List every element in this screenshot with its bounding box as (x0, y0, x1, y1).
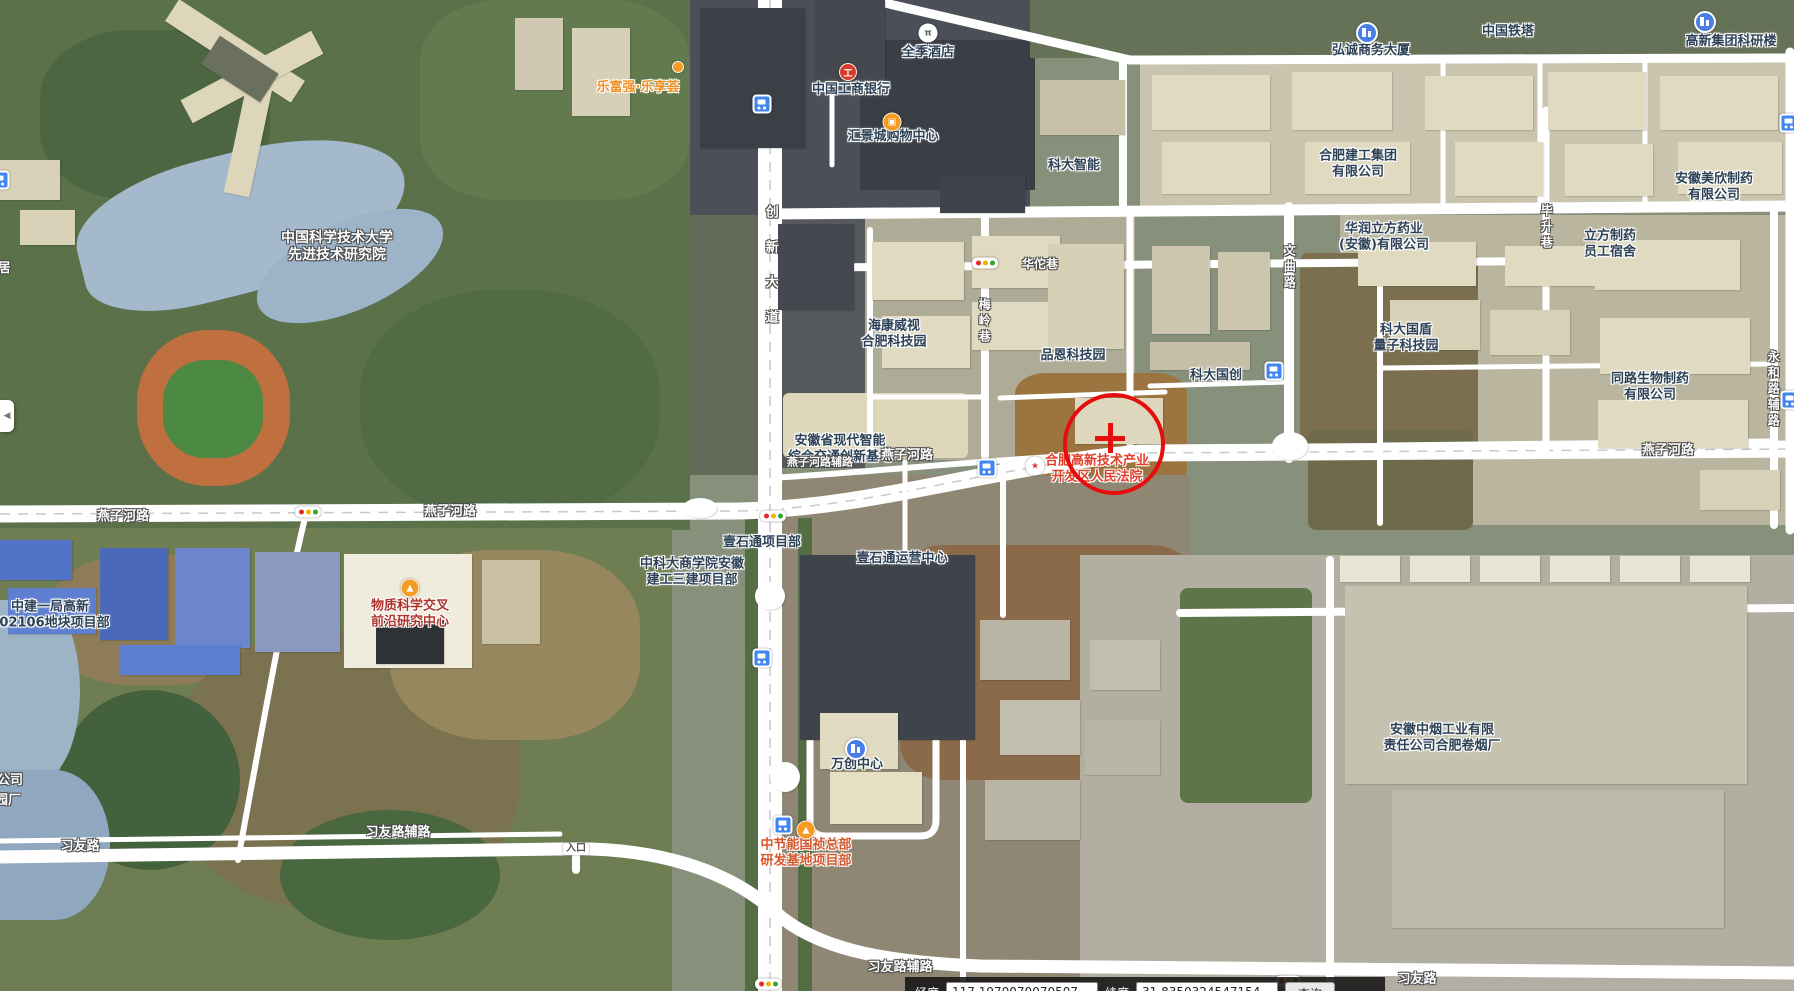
lab-flask-icon[interactable]: ▲ (401, 579, 420, 598)
map-label[interactable]: 品恩科技园 (1040, 348, 1105, 364)
marker-crosshair-v (1108, 423, 1113, 453)
map-label: 燕子河路 (881, 448, 933, 464)
map-label: 习友路 (60, 839, 99, 855)
map-label[interactable]: 华润立方药业(安徽)有限公司 (1339, 221, 1429, 252)
latitude-label: 纬度 (1105, 984, 1129, 991)
map-label: 园厂 (0, 793, 21, 809)
traffic-light-icon (760, 511, 786, 522)
traffic-light-icon (972, 258, 998, 269)
map-label: 燕子河路 (1642, 443, 1694, 459)
map-label: 居 (0, 261, 11, 277)
chevron-left-icon: ◀ (4, 411, 11, 421)
map-label: 燕子河路 (97, 509, 149, 525)
map-label: 华佗巷 (1022, 257, 1058, 271)
panel-collapse-button[interactable]: ◀ (0, 400, 14, 432)
map-label[interactable]: 中国工商银行 (812, 82, 890, 98)
poi-dot-icon[interactable] (672, 61, 684, 73)
bank-icon[interactable]: 工 (839, 63, 857, 81)
map-label: 毕升巷 (1539, 204, 1553, 252)
bus-stop-icon[interactable] (1780, 114, 1794, 133)
shopping-icon[interactable]: ▣ (883, 113, 902, 132)
map-label: 习友路辅路 (867, 960, 932, 976)
bus-stop-icon[interactable] (1781, 391, 1794, 410)
bus-stop-icon[interactable] (774, 816, 793, 835)
map-label[interactable]: 中科大商学院安徽建工三建项目部 (640, 556, 744, 587)
map-label: 文曲路 (1282, 244, 1296, 292)
map-label[interactable]: 海康威视合肥科技园 (861, 318, 926, 349)
map-label: 永和路辅路 (1766, 350, 1780, 430)
map-label: 燕子河路 (424, 504, 476, 520)
map-label[interactable]: 弘诚商务大厦 (1332, 43, 1410, 59)
court-star-icon[interactable]: ★ (1026, 457, 1045, 476)
map-label[interactable]: 安徽美欣制药有限公司 (1675, 171, 1753, 202)
building-poi-icon[interactable] (1356, 22, 1378, 44)
map-label: 习友路辅路 (365, 825, 430, 841)
map-label[interactable]: 中建一局高新202106地块项目部 (0, 599, 110, 630)
map-label[interactable]: 中节能国祯总部研发基地项目部 (760, 837, 851, 868)
bus-stop-icon[interactable] (978, 459, 997, 478)
lab-flask-icon[interactable]: ▲ (797, 821, 816, 840)
traffic-light-icon (295, 507, 321, 518)
map-label: 中国科学技术大学先进技术研究院 (281, 230, 393, 264)
bus-stop-icon[interactable] (753, 95, 772, 114)
hotel-icon[interactable]: π (919, 24, 938, 43)
map-label: 公司 (0, 773, 23, 789)
bus-stop-icon[interactable] (1265, 362, 1284, 381)
map-label: 燕子河路辅路 (787, 455, 853, 468)
map-label[interactable]: 合肥建工集团有限公司 (1319, 148, 1397, 179)
labels-layer: 中国铁塔弘诚商务大厦高新集团科研楼合肥建工集团有限公司华润立方药业(安徽)有限公… (0, 0, 1794, 991)
map-label: 习友路 (1397, 972, 1436, 988)
map-label[interactable]: 壹石通项目部 (723, 535, 801, 551)
bus-stop-icon[interactable] (0, 171, 10, 190)
map-label[interactable]: 全季酒店 (902, 45, 954, 61)
map-label[interactable]: 科大智能 (1048, 158, 1100, 174)
map-label[interactable]: 科大国创 (1190, 368, 1242, 384)
map-label[interactable]: 汇景城购物中心 (847, 129, 938, 145)
map-label[interactable]: 物质科学交叉前沿研究中心 (371, 598, 449, 629)
map-label[interactable]: 高新集团科研楼 (1685, 34, 1776, 50)
map-canvas[interactable]: 中国铁塔弘诚商务大厦高新集团科研楼合肥建工集团有限公司华润立方药业(安徽)有限公… (0, 0, 1794, 991)
latitude-value[interactable]: 31.8350324547154 (1136, 982, 1278, 991)
map-label: 入口 (563, 843, 589, 855)
building-poi-icon[interactable] (1694, 11, 1716, 33)
query-button[interactable]: 查询 (1285, 982, 1335, 991)
bus-stop-icon[interactable] (753, 649, 772, 668)
map-label[interactable]: 安徽中烟工业有限责任公司合肥卷烟厂 (1383, 722, 1500, 753)
map-label[interactable]: 同路生物制药有限公司 (1611, 371, 1689, 402)
coordinate-bar: 经度 117.1970070070507 纬度 31.8350324547154… (905, 977, 1385, 991)
map-label: 创新大道 (762, 205, 778, 345)
map-label[interactable]: 立方制药员工宿舍 (1584, 228, 1636, 259)
marker-circle (1063, 393, 1165, 495)
longitude-value[interactable]: 117.1970070070507 (946, 982, 1098, 991)
map-label[interactable]: 科大国盾量子科技园 (1373, 322, 1438, 353)
map-label[interactable]: 乐富强·乐享荟 (597, 80, 680, 96)
traffic-light-icon (755, 979, 781, 990)
building-poi-icon[interactable] (845, 738, 867, 760)
map-label: 梅岭巷 (977, 298, 991, 346)
map-label[interactable]: 壹石通运营中心 (856, 551, 947, 567)
longitude-label: 经度 (915, 984, 939, 991)
map-label[interactable]: 中国铁塔 (1482, 24, 1534, 40)
